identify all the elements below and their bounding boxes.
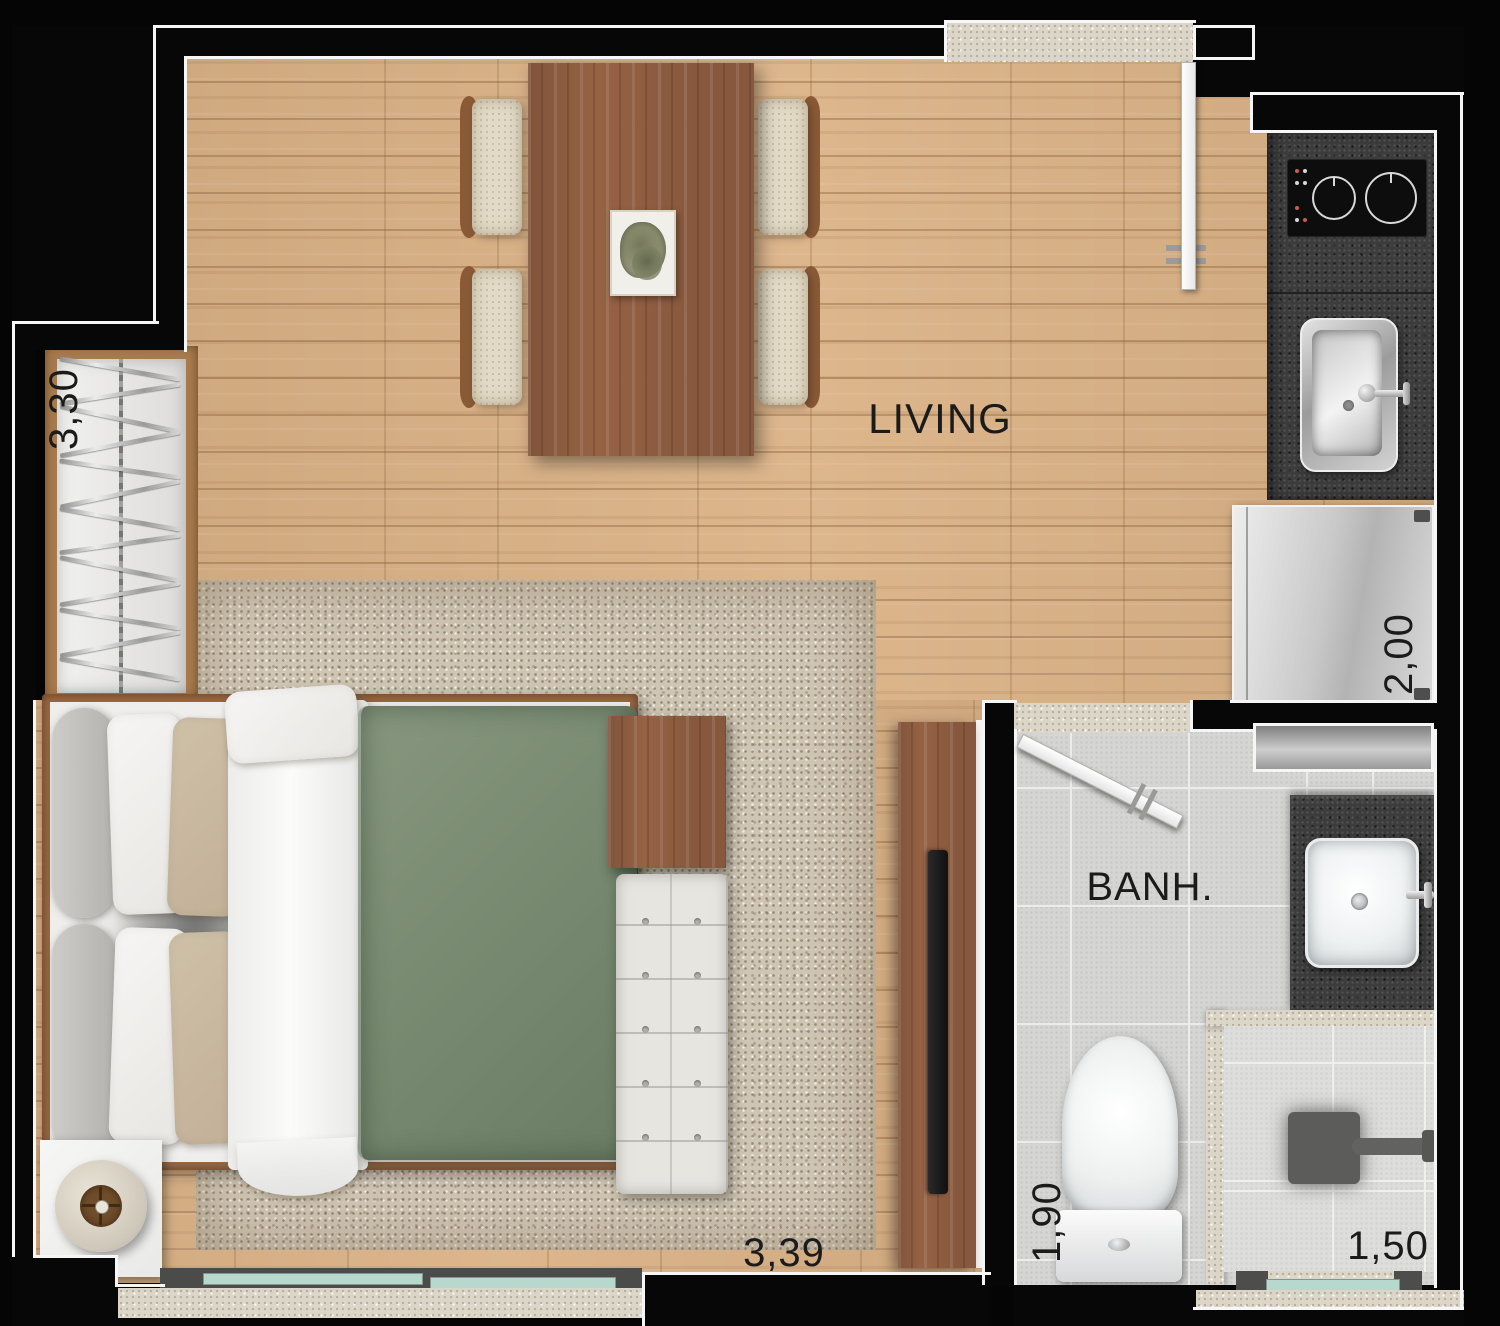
lamp-base [80,1185,122,1227]
hanger-icon [59,617,181,625]
flush-button-icon [1108,1238,1130,1251]
fridge-door-seam [1246,507,1248,703]
wall-outline [944,20,1196,23]
wall-outline [153,25,947,28]
hanger-icon [59,542,181,550]
wall [12,25,186,350]
entry-hall-floor [944,23,1193,62]
wall-outline [33,700,36,1257]
wall [642,1272,991,1326]
wall-outline [184,56,187,352]
dimension-closet: 3,30 [14,359,114,459]
wall-outline [184,56,947,59]
hanger-icon [59,642,181,650]
shower-head-icon [1288,1112,1360,1184]
cooktop-indicator [1303,181,1307,185]
wall-outline [153,25,156,323]
wall-outline [1460,92,1463,1310]
dimension-bathroom-width: 1,50 [1338,1226,1438,1266]
bath-window-frame [1236,1271,1268,1292]
window-glass [203,1273,423,1285]
hanger-icon [59,567,181,575]
wall [1250,25,1464,133]
cooktop-indicator [1295,218,1299,222]
table-centerpiece [610,210,676,296]
room-label-living: LIVING [860,396,1020,442]
cooktop-indicator [1303,169,1307,173]
shower-partition-horizontal [1206,1010,1434,1026]
dining-chair [462,96,524,238]
table-lamp [55,1160,147,1252]
tv [928,850,948,1194]
counter-seam [1267,292,1434,294]
wall-outline [115,1284,165,1287]
wall-outline [12,321,159,324]
tuft-button-icon [642,1080,649,1087]
dining-chair [462,266,524,408]
wall-outline [982,700,1017,703]
bathroom-sink [1305,838,1419,968]
hanger-icon [59,592,181,600]
burner-tick [1390,173,1392,183]
tuft-button-icon [694,1134,701,1141]
chair-seat [472,99,522,235]
burner-tick [1333,177,1335,186]
hanger-icon [59,492,181,500]
wall [153,25,947,59]
hanger-icon [59,467,181,475]
tuft-button-icon [642,918,649,925]
hanger-icon [59,517,181,525]
pillow [224,683,361,764]
sink-drain-icon [1351,893,1368,910]
dining-chair [756,96,818,238]
nightstand [608,716,726,868]
wall-outline [1250,130,1437,133]
tuft-button-icon [694,1026,701,1033]
chair-seat [758,99,808,235]
chair-seat [472,269,522,405]
headboard-bolster [52,924,116,1156]
entry-column [1193,25,1255,60]
cooktop-indicator [1303,218,1307,222]
dimension-bathroom-depth: 1,90 [997,1172,1097,1272]
wall [12,1255,118,1326]
wall-outline [1250,92,1464,95]
fridge-hinge [1414,510,1430,522]
tuft-button-icon [642,972,649,979]
bathroom-faucet-handle [1424,882,1432,908]
wall-outline [1250,95,1253,133]
wall-outline [1190,700,1193,732]
wall-niche-shelf [1253,723,1434,772]
cooktop [1287,159,1427,237]
dimension-bedroom: 3,39 [734,1232,834,1274]
floor-plan: LIVING BANH. 3,39 1,50 3,30 2,00 1,90 [0,0,1500,1326]
cooktop-indicator [1295,169,1299,173]
terrace-floor [118,1288,642,1318]
room-label-bathroom: BANH. [1075,864,1225,910]
hanger-icon [59,667,181,675]
plant-icon [632,246,662,280]
cooktop-indicator [1295,181,1299,185]
kitchen-faucet-handle [1403,382,1410,405]
bathroom-door-threshold [1014,703,1190,733]
lamp-finial [95,1200,109,1214]
wall-outline [12,321,15,1257]
tuft-button-icon [642,1134,649,1141]
tuft-button-icon [694,1080,701,1087]
folded-sheet [228,700,368,1170]
wall-outline [1193,1307,1464,1310]
shower-partition-vertical [1206,1010,1224,1285]
wall-outline [115,1255,118,1286]
tuft-button-icon [642,1026,649,1033]
wall-outline [1434,730,1437,1288]
wall-outline [982,700,985,1285]
dimension-kitchen: 2,00 [1349,604,1449,704]
dining-chair [756,266,818,408]
cooktop-indicator [1295,206,1299,210]
bath-exterior-strip [1196,1290,1464,1307]
chair-seat [758,269,808,405]
entry-door [1181,62,1196,290]
duvet [358,706,637,1160]
tuft-button-icon [694,972,701,979]
tuft-button-icon [694,918,701,925]
wall-outline [33,1255,118,1258]
bench [616,874,728,1194]
sink-drain-icon [1343,400,1354,411]
